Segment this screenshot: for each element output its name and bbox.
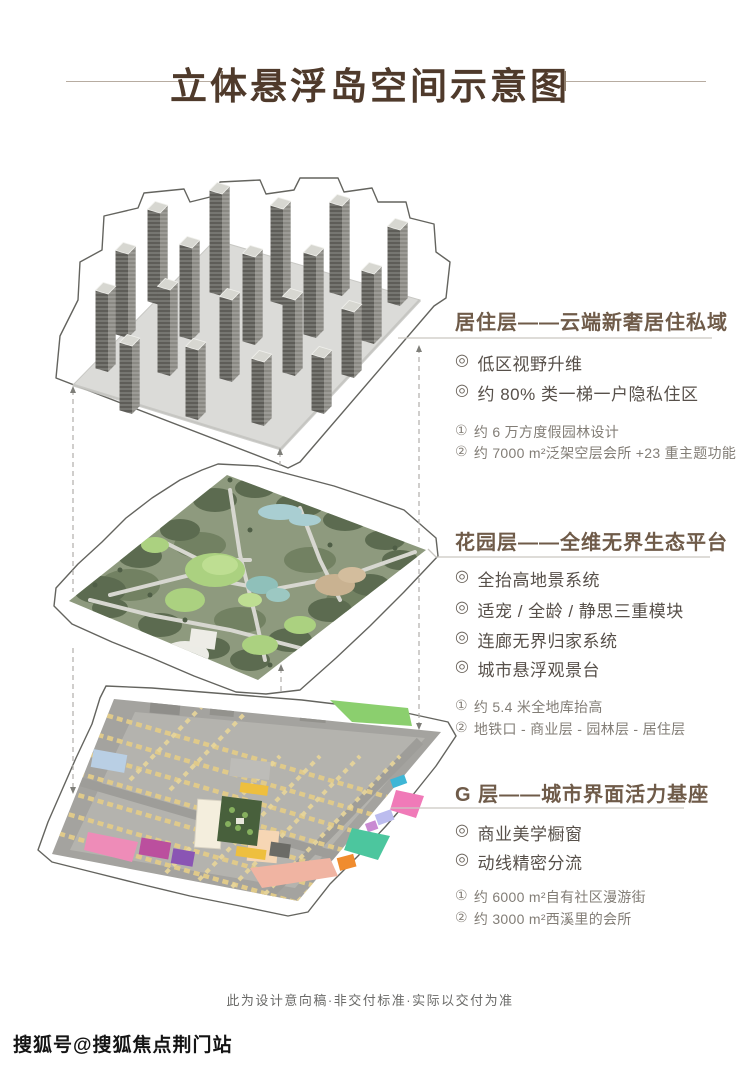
circled-two-icon: ② xyxy=(455,719,468,736)
ground-layer-illustration xyxy=(38,686,480,953)
bullet-text: 低区视野升维 xyxy=(477,350,582,375)
watermark-text: 搜狐号@搜狐焦点荆门站 xyxy=(13,1030,233,1057)
section-residential: 居住层——云端新奢居住私域 ◎ 低区视野升维 ◎ 约 80% 类一梯一户隐私住区… xyxy=(455,296,737,466)
circled-one-icon: ① xyxy=(455,697,468,714)
ring-bullet-icon: ◎ xyxy=(455,597,469,617)
note-item: ① 约 5.4 米全地库抬高 xyxy=(455,697,603,717)
section-ground: G 层——城市界面活力基座 ◎ 商业美学橱窗 ◎ 动线精密分流 ① 约 6000… xyxy=(455,768,737,928)
note-item: ② 约 7000 m²泛架空层会所 +23 重主题功能 xyxy=(455,443,736,463)
ring-bullet-icon: ◎ xyxy=(455,350,469,370)
ring-bullet-icon: ◎ xyxy=(455,656,469,676)
note-text: 地铁口 - 商业层 - 园林层 - 居住层 xyxy=(474,719,686,739)
garden-layer-illustration xyxy=(40,450,460,710)
bullet-text: 连廊无界归家系统 xyxy=(477,627,617,652)
note-item: ② 地铁口 - 商业层 - 园林层 - 居住层 xyxy=(455,719,685,739)
section-ground-heading: G 层——城市界面活力基座 xyxy=(455,778,709,807)
bullet-item: ◎ 动线精密分流 xyxy=(455,849,582,874)
ring-bullet-icon: ◎ xyxy=(455,820,469,840)
disclaimer-text: 此为设计意向稿·非交付标准·实际以交付为准 xyxy=(0,990,740,1009)
bullet-item: ◎ 城市悬浮观景台 xyxy=(455,656,600,681)
bullet-text: 动线精密分流 xyxy=(477,849,582,874)
bullet-text: 城市悬浮观景台 xyxy=(477,656,600,681)
section-residential-heading: 居住层——云端新奢居住私域 xyxy=(455,306,728,335)
ring-bullet-icon: ◎ xyxy=(455,849,469,869)
note-item: ① 约 6000 m²自有社区漫游街 xyxy=(455,887,646,907)
section-garden: 花园层——全维无界生态平台 ◎ 全抬高地景系统 ◎ 适宠 / 全龄 / 静思三重… xyxy=(455,516,737,746)
bullet-text: 适宠 / 全龄 / 静思三重模块 xyxy=(477,597,683,622)
bullet-item: ◎ 适宠 / 全龄 / 静思三重模块 xyxy=(455,597,684,622)
note-text: 约 5.4 米全地库抬高 xyxy=(474,697,603,717)
section-garden-heading: 花园层——全维无界生态平台 xyxy=(455,526,728,555)
bullet-item: ◎ 低区视野升维 xyxy=(455,350,582,375)
bullet-item: ◎ 连廊无界归家系统 xyxy=(455,627,617,652)
bullet-text: 商业美学橱窗 xyxy=(477,820,582,845)
bullet-item: ◎ 约 80% 类一梯一户隐私住区 xyxy=(455,380,698,405)
ring-bullet-icon: ◎ xyxy=(455,566,469,586)
note-text: 约 7000 m²泛架空层会所 +23 重主题功能 xyxy=(474,443,736,463)
bullet-text: 全抬高地景系统 xyxy=(477,566,600,591)
circled-one-icon: ① xyxy=(455,887,468,904)
page: 立体悬浮岛空间示意图 xyxy=(0,0,740,1070)
note-text: 约 3000 m²西溪里的会所 xyxy=(474,909,632,929)
circled-one-icon: ① xyxy=(455,422,468,439)
circled-two-icon: ② xyxy=(455,443,468,460)
ring-bullet-icon: ◎ xyxy=(455,627,469,647)
note-item: ② 约 3000 m²西溪里的会所 xyxy=(455,909,632,929)
note-text: 约 6000 m²自有社区漫游街 xyxy=(474,887,646,907)
circled-two-icon: ② xyxy=(455,909,468,926)
bullet-item: ◎ 全抬高地景系统 xyxy=(455,566,600,591)
ring-bullet-icon: ◎ xyxy=(455,380,469,400)
note-text: 约 6 万方度假园林设计 xyxy=(474,422,619,442)
note-item: ① 约 6 万方度假园林设计 xyxy=(455,422,619,442)
residential-layer-illustration xyxy=(56,178,450,468)
bullet-item: ◎ 商业美学橱窗 xyxy=(455,820,582,845)
bullet-text: 约 80% 类一梯一户隐私住区 xyxy=(477,380,698,405)
